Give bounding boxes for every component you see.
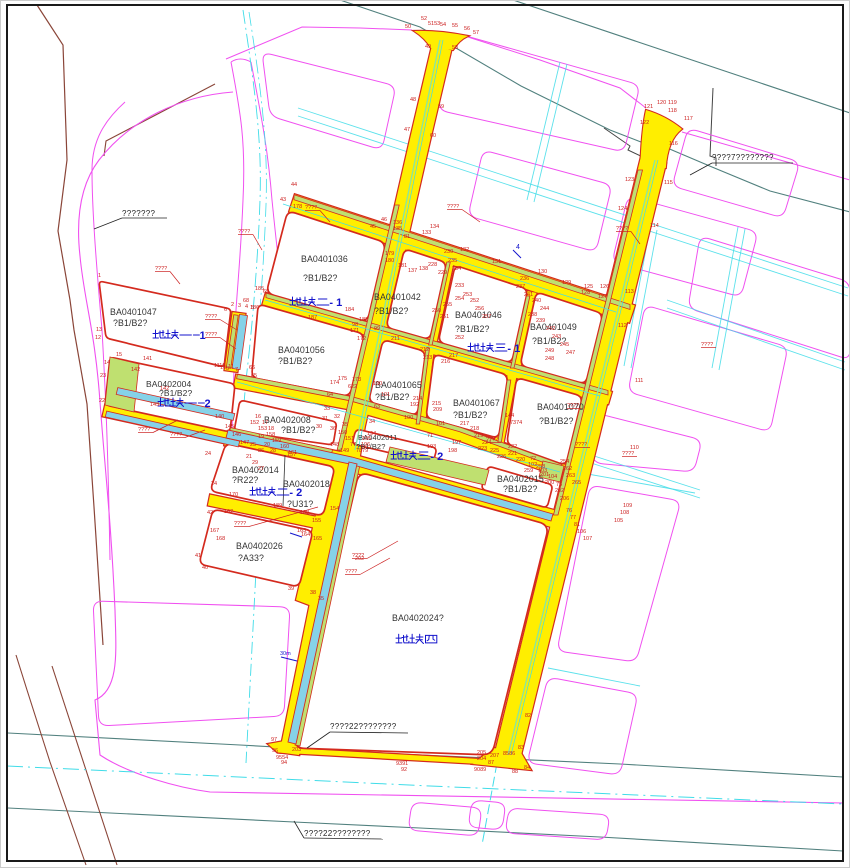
svg-text:40: 40 [202,565,208,571]
svg-text:19: 19 [258,434,264,440]
svg-text:149: 149 [340,448,349,454]
svg-text:7: 7 [235,367,238,373]
svg-text:173: 173 [352,377,361,383]
svg-text:58: 58 [452,45,458,51]
svg-text:?B1/B2?: ?B1/B2? [303,273,337,283]
svg-text:187: 187 [308,315,317,321]
svg-text:?B1/B2?: ?B1/B2? [278,356,312,366]
svg-text:263: 263 [566,473,575,479]
svg-text:111: 111 [635,378,643,384]
svg-text:???????: ??????? [122,209,155,218]
svg-text:138: 138 [419,266,428,272]
svg-text:????22????????: ????22???????? [304,829,371,838]
svg-text:?R22?: ?R22? [232,475,258,485]
svg-text:????: ???? [238,229,250,235]
svg-text:157: 157 [287,452,296,458]
svg-text:204: 204 [477,756,486,762]
svg-text:BA0401036: BA0401036 [301,254,348,264]
svg-text:81: 81 [404,234,410,240]
svg-text:????22????????: ????22???????? [330,722,397,731]
svg-text:82: 82 [525,713,531,719]
svg-text:99: 99 [374,326,380,332]
svg-text:233: 233 [455,283,464,289]
svg-text:6: 6 [224,307,227,313]
svg-text:202: 202 [355,556,364,562]
svg-text:2: 2 [231,302,234,308]
svg-text:5: 5 [251,305,254,311]
svg-text:251: 251 [440,314,449,320]
svg-text:-: - [289,487,293,499]
svg-text:????: ???? [305,205,317,211]
svg-text:170: 170 [229,492,238,498]
svg-text:105: 105 [614,518,623,524]
svg-text:145: 145 [225,424,234,430]
svg-text:7879: 7879 [356,448,368,454]
svg-text:184: 184 [345,307,354,313]
svg-text:211: 211 [391,336,400,342]
svg-text:5153: 5153 [428,21,440,27]
svg-text:1: 1 [514,343,520,355]
svg-text:55: 55 [452,23,458,29]
svg-text:236: 236 [520,276,529,282]
svg-text:?U31?: ?U31? [287,499,313,509]
svg-text:1: 1 [336,297,342,309]
svg-text:?B1/B2?: ?B1/B2? [503,484,537,494]
svg-text:164: 164 [301,532,310,538]
svg-text:11: 11 [228,364,234,370]
svg-text:15: 15 [116,352,122,358]
svg-text:54: 54 [440,22,446,28]
svg-text:?B1/B2?: ?B1/B2? [455,324,489,334]
svg-text:47: 47 [404,127,410,133]
svg-text:????: ???? [170,432,182,438]
svg-text:107: 107 [583,536,592,542]
svg-text:115: 115 [664,180,673,186]
svg-text:190: 190 [373,381,382,387]
svg-text:206: 206 [560,496,569,502]
svg-text:????: ???? [567,403,579,409]
svg-text:137: 137 [408,268,417,274]
svg-text:237: 237 [516,284,525,290]
svg-text:197: 197 [452,440,461,446]
svg-text:124: 124 [618,206,627,212]
svg-text:49: 49 [425,44,431,50]
svg-text:207: 207 [490,753,499,759]
svg-text:100: 100 [404,415,413,421]
svg-text:243: 243 [552,334,561,340]
svg-text:????: ???? [234,521,246,527]
svg-text:12: 12 [95,335,101,341]
svg-text:59: 59 [438,104,444,110]
svg-text:56: 56 [464,26,470,32]
svg-text:242: 242 [546,326,555,332]
svg-text:201: 201 [540,472,549,478]
svg-text:BA0402008: BA0402008 [264,415,311,425]
svg-text:258: 258 [536,464,545,470]
svg-text:88: 88 [512,769,518,775]
svg-text:76: 76 [566,508,572,514]
svg-text:77: 77 [570,515,576,521]
svg-text:155: 155 [312,518,321,524]
svg-text:4: 4 [516,244,520,251]
svg-text:?B1/B2?: ?B1/B2? [374,306,408,316]
svg-text:????: ???? [701,342,713,348]
svg-text:226: 226 [497,454,506,460]
svg-text:129: 129 [562,280,571,286]
svg-text:217: 217 [460,421,469,427]
svg-text:2: 2 [437,451,443,463]
svg-text:143: 143 [150,402,159,408]
svg-text:????: ???? [138,427,150,433]
svg-text:148: 148 [330,442,339,448]
svg-text:BA0402014: BA0402014 [232,465,279,475]
svg-text:43: 43 [280,197,286,203]
svg-text:254: 254 [560,459,569,465]
svg-text:81: 81 [574,522,580,528]
svg-text:245: 245 [560,342,569,348]
svg-text:116: 116 [669,141,678,147]
svg-text:2: 2 [296,487,302,499]
svg-text:BA0401056: BA0401056 [278,345,325,355]
svg-text:8586: 8586 [503,751,515,757]
svg-text:142: 142 [160,386,169,392]
svg-text:BA0402024?: BA0402024? [392,613,444,623]
svg-text:14: 14 [104,360,110,366]
svg-text:222: 222 [508,444,517,450]
svg-text:249: 249 [545,348,554,354]
svg-text:109: 109 [623,503,632,509]
svg-text:38: 38 [310,590,316,596]
svg-text:BA0402026: BA0402026 [236,541,283,551]
svg-text:178: 178 [293,204,302,210]
svg-text:248: 248 [545,356,554,362]
svg-text:7374: 7374 [510,420,522,426]
svg-text:114: 114 [650,223,659,229]
svg-text:141: 141 [143,356,152,362]
svg-text:96: 96 [272,748,278,754]
svg-text:252: 252 [470,298,479,304]
svg-text:64: 64 [327,392,333,398]
svg-text:1: 1 [98,273,101,279]
svg-text:57: 57 [473,30,479,36]
svg-text:140: 140 [215,414,224,420]
svg-text:46: 46 [381,217,387,223]
svg-text:192: 192 [410,402,419,408]
svg-text:87: 87 [488,760,494,766]
svg-text:10: 10 [220,365,226,371]
svg-text:167: 167 [210,528,219,534]
svg-text:9089: 9089 [474,767,486,773]
svg-text:36: 36 [330,426,336,432]
svg-text:84: 84 [524,765,530,771]
svg-text:????: ???? [616,226,628,232]
svg-text:230: 230 [444,249,453,255]
svg-text:?B1/B2?: ?B1/B2? [539,416,573,426]
svg-text:31: 31 [322,416,328,422]
svg-text:120: 120 [657,100,666,106]
svg-text:244: 244 [540,306,549,312]
svg-text:?A33?: ?A33? [238,553,264,563]
svg-text:71: 71 [427,433,433,439]
svg-text:23: 23 [100,373,106,379]
svg-text:122: 122 [640,120,649,126]
svg-text:????: ???? [205,314,217,320]
svg-text:94: 94 [281,760,287,766]
svg-text:121: 121 [644,104,653,110]
svg-text:25: 25 [250,442,256,448]
svg-text:229: 229 [438,270,447,276]
svg-text:188: 188 [300,510,309,516]
svg-text:24: 24 [205,451,211,457]
svg-text:239: 239 [536,318,545,324]
svg-text:????: ???? [575,442,587,448]
svg-text:34: 34 [369,419,375,425]
svg-text:48: 48 [410,97,416,103]
svg-text:228: 228 [428,262,437,268]
svg-text:265: 265 [572,480,581,486]
svg-text:27: 27 [258,466,264,472]
svg-text:BA0402015: BA0402015 [497,474,544,484]
svg-text:60: 60 [430,133,436,139]
svg-text:217: 217 [449,353,458,359]
svg-text:218: 218 [470,426,479,432]
svg-text:126: 126 [600,284,609,290]
svg-text:????: ???? [447,204,459,210]
svg-text:110: 110 [630,445,639,451]
svg-text:240: 240 [532,298,541,304]
svg-text:?B1/B2?: ?B1/B2? [453,410,487,420]
svg-text:123: 123 [625,177,634,183]
svg-text:????: ???? [155,266,167,272]
svg-text:622: 622 [348,384,357,390]
svg-text:257: 257 [482,314,491,320]
svg-text:119: 119 [668,100,677,106]
svg-text:202: 202 [555,488,564,494]
svg-text:????7????????: ????7???????? [712,153,774,162]
svg-text:235: 235 [448,258,457,264]
svg-text:254: 254 [455,296,464,302]
svg-text:106: 106 [577,529,586,535]
svg-text:35: 35 [318,596,324,602]
svg-text:172: 172 [357,336,366,342]
svg-text:134: 134 [430,224,439,230]
svg-text:65: 65 [251,373,257,379]
svg-text:117: 117 [684,116,693,122]
svg-text:162: 162 [224,509,233,515]
svg-text:97: 97 [271,737,277,743]
svg-text:BA0401067: BA0401067 [453,398,500,408]
svg-text:42: 42 [207,510,213,516]
svg-text:181: 181 [398,263,407,269]
svg-text:212: 212 [420,347,429,353]
svg-text:171: 171 [350,328,359,334]
svg-text:98: 98 [352,322,358,328]
svg-text:66: 66 [249,365,255,371]
svg-text:256: 256 [475,306,484,312]
svg-text:112: 112 [618,323,627,329]
svg-text:-: - [430,451,434,463]
svg-text:146: 146 [232,432,241,438]
svg-text:209: 209 [433,407,442,413]
svg-text:223: 223 [478,446,487,452]
svg-text:216: 216 [441,359,450,365]
svg-text:72: 72 [530,456,536,462]
svg-text:22: 22 [99,398,105,404]
svg-text:262: 262 [563,466,572,472]
svg-text:154: 154 [330,506,339,512]
svg-text:BA0401042: BA0401042 [374,292,421,302]
svg-text:30m: 30m [280,651,291,657]
svg-text:135: 135 [393,226,402,232]
svg-text:BA0401047: BA0401047 [110,307,157,317]
svg-text:183: 183 [359,317,368,323]
svg-text:191: 191 [381,392,390,398]
svg-text:198: 198 [448,448,457,454]
svg-text:175: 175 [338,376,347,382]
svg-text:28: 28 [270,448,276,454]
svg-text:220: 220 [516,457,525,463]
svg-text:13: 13 [96,327,102,333]
svg-text:????: ???? [345,569,357,575]
svg-text:24: 24 [211,481,217,487]
svg-text:131: 131 [492,259,501,265]
svg-text:44: 44 [291,182,297,188]
svg-text:35: 35 [342,422,348,428]
svg-text:45: 45 [370,224,376,230]
svg-text:200: 200 [545,480,554,486]
svg-text:52: 52 [421,16,427,22]
svg-text:259: 259 [524,468,533,474]
svg-text:179: 179 [385,251,394,257]
svg-text:101: 101 [436,421,445,427]
svg-text:193: 193 [427,444,436,450]
svg-text:247: 247 [566,350,575,356]
svg-text:????: ???? [622,451,634,457]
svg-text:83: 83 [518,745,524,751]
svg-text:92: 92 [401,767,407,773]
svg-text:108: 108 [620,510,629,516]
svg-text:252: 252 [455,335,464,341]
svg-text:118: 118 [668,108,677,114]
svg-text:180: 180 [385,258,394,264]
svg-text:2: 2 [205,398,211,410]
svg-text:3: 3 [238,303,241,309]
svg-text:132: 132 [460,247,469,253]
svg-text:?B1/B2?: ?B1/B2? [281,425,315,435]
svg-text:????: ???? [205,332,217,338]
svg-text:165: 165 [313,536,322,542]
svg-text:147: 147 [240,440,249,446]
svg-text:142: 142 [131,367,140,373]
svg-text:4: 4 [245,304,248,310]
svg-text:213: 213 [423,355,432,361]
svg-text:?B1/B2?: ?B1/B2? [113,318,147,328]
svg-text:133: 133 [422,230,431,236]
svg-text:130: 130 [538,269,547,275]
svg-text:144: 144 [505,413,514,419]
svg-text:127: 127 [598,294,607,300]
svg-text:-: - [507,343,511,355]
svg-text:32: 32 [334,414,340,420]
svg-text:255: 255 [443,302,452,308]
svg-text:-: - [329,297,333,309]
svg-text:189: 189 [273,503,282,509]
svg-text:234: 234 [452,266,461,272]
svg-text:219: 219 [474,433,483,439]
svg-text:26: 26 [258,448,264,454]
svg-text:50: 50 [405,24,411,30]
svg-text:33: 33 [324,406,330,412]
svg-text:41: 41 [195,553,201,559]
svg-text:30: 30 [316,424,322,430]
svg-text:168: 168 [216,536,225,542]
svg-text:39: 39 [288,586,294,592]
svg-text:63: 63 [374,404,380,410]
svg-text:69: 69 [263,289,269,295]
svg-text:113: 113 [625,289,634,295]
svg-text:128: 128 [581,290,590,296]
svg-text:203: 203 [292,747,301,753]
